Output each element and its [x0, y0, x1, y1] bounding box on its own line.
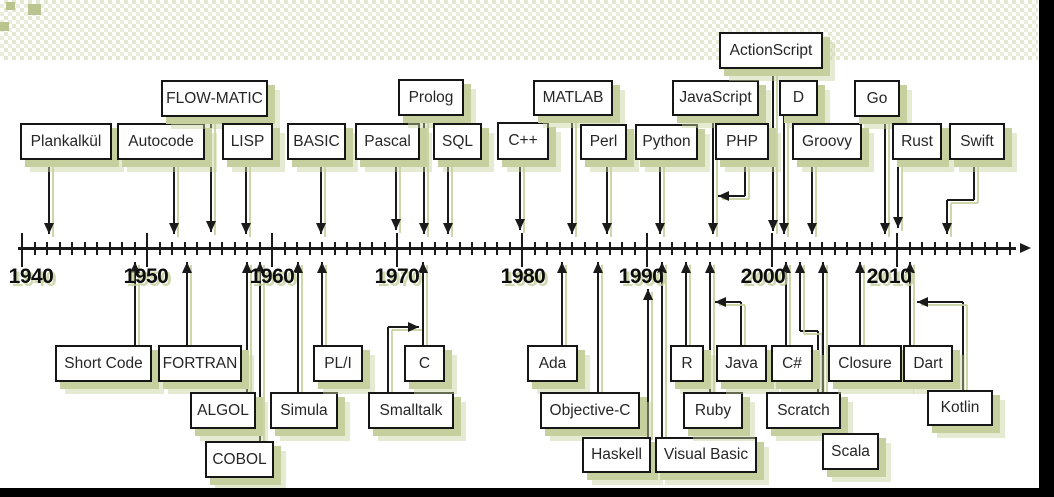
language-label-sql: SQL — [442, 133, 473, 151]
axis-year-tick — [884, 242, 886, 255]
language-label-c: C — [419, 355, 430, 373]
connector-objective-c — [597, 262, 599, 392]
language-box-scala: Scala — [822, 433, 879, 470]
language-label-ada: Ada — [539, 355, 567, 373]
language-label-python: Python — [642, 133, 690, 151]
arrow-pascal — [391, 219, 401, 230]
connector-r — [685, 262, 687, 345]
axis-year-tick — [434, 242, 436, 255]
axis-year-tick — [871, 242, 873, 255]
axis-decade-tick — [21, 233, 23, 267]
connector-fortran — [186, 262, 188, 345]
language-box-flow-matic: FLOW-MATIC — [161, 80, 268, 117]
language-box-go: Go — [854, 80, 900, 117]
language-label-scratch: Scratch — [777, 402, 830, 420]
language-label-algol: ALGOL — [197, 402, 249, 420]
axis-year-tick — [321, 242, 323, 255]
language-label-pl-i: PL/I — [324, 355, 352, 373]
language-label-ruby: Ruby — [695, 402, 731, 420]
axis-year-tick — [859, 242, 861, 255]
axis-year-label-1980: 1980 — [501, 265, 546, 289]
language-label-swift: Swift — [960, 133, 994, 151]
arrow-lisp — [241, 223, 251, 234]
axis-year-tick — [559, 242, 561, 255]
language-label-fortran: FORTRAN — [163, 355, 238, 373]
axis-year-tick — [721, 242, 723, 255]
connector-ada — [561, 262, 563, 345]
axis-year-tick — [709, 242, 711, 255]
axis-year-tick — [409, 242, 411, 255]
language-box-ruby: Ruby — [683, 392, 743, 429]
arrow-c — [515, 219, 525, 230]
axis-year-tick — [684, 242, 686, 255]
axis-year-tick — [984, 242, 986, 255]
language-label-pascal: Pascal — [364, 133, 411, 151]
language-label-short-code: Short Code — [64, 355, 142, 373]
axis-year-tick — [71, 242, 73, 255]
language-label-groovy: Groovy — [802, 133, 852, 151]
axis-year-tick — [971, 242, 973, 255]
axis-year-tick — [659, 242, 661, 255]
axis-year-tick — [796, 242, 798, 255]
arrow-d — [779, 223, 789, 234]
axis-year-label-1950: 1950 — [124, 265, 169, 289]
axis-year-tick — [784, 242, 786, 255]
corner-speckle — [6, 2, 15, 10]
axis-year-tick — [821, 242, 823, 255]
language-label-autocode: Autocode — [128, 133, 194, 151]
axis-year-tick — [209, 242, 211, 255]
axis-decade-tick — [896, 233, 898, 267]
connector-actionscript — [772, 69, 774, 231]
axis-end-arrow — [1020, 243, 1031, 253]
axis-year-tick — [334, 242, 336, 255]
arrow-kotlin — [917, 297, 928, 307]
language-label-dart: Dart — [913, 355, 942, 373]
language-label-prolog: Prolog — [409, 89, 454, 107]
arrow-haskell — [643, 289, 653, 300]
language-box-autocode: Autocode — [117, 123, 205, 160]
axis-year-tick — [534, 242, 536, 255]
connector-kotlin — [962, 302, 964, 390]
arrow-swift — [942, 223, 952, 234]
arrow-javascript — [708, 223, 718, 234]
programming-languages-timeline-diagram: 19401950196019701980199020002010Plankalk… — [0, 0, 1054, 497]
axis-year-tick — [446, 242, 448, 255]
axis-year-tick — [384, 242, 386, 255]
axis-year-tick — [609, 242, 611, 255]
axis-year-tick — [259, 242, 261, 255]
language-box-r: R — [670, 345, 704, 382]
language-box-pascal: Pascal — [355, 123, 420, 160]
axis-year-tick — [696, 242, 698, 255]
language-box-sql: SQL — [433, 123, 482, 160]
language-box-plankalk-l: Plankalkül — [20, 123, 112, 160]
axis-year-tick — [934, 242, 936, 255]
language-label-smalltalk: Smalltalk — [380, 402, 443, 420]
connector-matlab — [571, 116, 573, 234]
axis-decade-tick — [146, 233, 148, 267]
arrow-matlab — [567, 223, 577, 234]
language-label-java: Java — [725, 355, 758, 373]
connector-pl-i — [321, 262, 323, 345]
language-label-perl: Perl — [590, 133, 618, 151]
language-box-dart: Dart — [903, 345, 953, 382]
frame-bottom-bar — [0, 488, 1054, 497]
language-label-matlab: MATLAB — [543, 89, 604, 107]
language-box-python: Python — [635, 124, 698, 160]
arrow-prolog — [419, 223, 429, 234]
axis-year-tick — [96, 242, 98, 255]
axis-year-tick — [759, 242, 761, 255]
arrow-actionscript — [768, 220, 778, 231]
axis-year-tick — [159, 242, 161, 255]
axis-year-tick — [284, 242, 286, 255]
arrow-flow-matic — [206, 221, 216, 232]
connector-flow-matic — [210, 117, 212, 232]
axis-year-tick — [834, 242, 836, 255]
language-label-c: C++ — [508, 132, 537, 150]
axis-year-tick — [734, 242, 736, 255]
language-box-c: C — [404, 345, 445, 382]
language-label-cobol: COBOL — [212, 451, 266, 469]
axis-year-tick — [234, 242, 236, 255]
arrow-groovy — [807, 223, 817, 234]
axis-year-tick — [1009, 242, 1011, 255]
language-box-cobol: COBOL — [205, 441, 274, 478]
axis-year-tick — [921, 242, 923, 255]
language-box-fortran: FORTRAN — [158, 345, 242, 382]
axis-year-tick — [846, 242, 848, 255]
language-label-actionscript: ActionScript — [730, 42, 813, 60]
language-box-c: C# — [771, 345, 813, 382]
language-label-javascript: JavaScript — [679, 89, 751, 107]
frame-right-bar — [1039, 0, 1054, 497]
axis-year-tick — [296, 242, 298, 255]
language-box-haskell: Haskell — [582, 437, 651, 473]
axis-year-tick — [496, 242, 498, 255]
language-box-groovy: Groovy — [792, 123, 862, 160]
arrow-sql — [443, 223, 453, 234]
language-label-d: D — [793, 89, 804, 107]
connector-ruby — [709, 262, 711, 392]
corner-speckle — [28, 4, 41, 15]
connector-javascript — [712, 116, 714, 234]
axis-year-tick — [484, 242, 486, 255]
language-box-c: C++ — [497, 122, 549, 160]
axis-decade-tick — [646, 233, 648, 267]
axis-year-tick — [346, 242, 348, 255]
axis-year-tick — [584, 242, 586, 255]
language-label-rust: Rust — [901, 133, 933, 151]
axis-year-tick — [121, 242, 123, 255]
language-label-php: PHP — [726, 133, 758, 151]
language-box-actionscript: ActionScript — [719, 32, 823, 69]
arrow-python — [655, 223, 665, 234]
connector-simula — [297, 262, 299, 392]
axis-year-tick — [621, 242, 623, 255]
axis-year-tick — [221, 242, 223, 255]
arrow-closure — [855, 262, 865, 273]
arrow-objective-c — [593, 262, 603, 273]
axis-year-label-1970: 1970 — [375, 265, 420, 289]
language-label-haskell: Haskell — [591, 446, 642, 464]
arrow-r — [681, 262, 691, 273]
language-box-java: Java — [716, 345, 767, 382]
language-label-simula: Simula — [280, 402, 327, 420]
axis-year-tick — [134, 242, 136, 255]
axis-year-tick — [809, 242, 811, 255]
axis-year-tick — [634, 242, 636, 255]
axis-year-tick — [571, 242, 573, 255]
axis-year-tick — [196, 242, 198, 255]
connector-prolog — [423, 116, 425, 234]
language-box-smalltalk: Smalltalk — [368, 392, 454, 429]
arrow-go — [880, 223, 890, 234]
axis-year-tick — [959, 242, 961, 255]
axis-year-tick — [46, 242, 48, 255]
language-box-short-code: Short Code — [55, 345, 152, 382]
language-box-simula: Simula — [270, 392, 338, 429]
language-box-algol: ALGOL — [190, 392, 256, 429]
axis-year-tick — [371, 242, 373, 255]
arrow-basic — [316, 223, 326, 234]
connector-haskell — [647, 289, 649, 437]
connector-java — [740, 302, 742, 345]
arrow-java — [715, 297, 726, 307]
language-label-basic: BASIC — [293, 133, 340, 151]
arrow-scratch — [795, 262, 805, 273]
connector-c — [422, 262, 424, 345]
language-box-php: PHP — [715, 123, 769, 160]
timeline-axis — [18, 247, 1016, 250]
language-box-swift: Swift — [949, 123, 1005, 160]
language-box-ada: Ada — [527, 345, 578, 382]
axis-year-label-1990: 1990 — [619, 265, 664, 289]
axis-decade-tick — [396, 233, 398, 267]
axis-year-tick — [546, 242, 548, 255]
arrow-fortran — [182, 262, 192, 273]
arrow-perl — [602, 223, 612, 234]
connector-algol — [246, 262, 248, 392]
language-box-pl-i: PL/I — [313, 345, 363, 382]
language-box-closure: Closure — [828, 345, 902, 382]
axis-year-tick — [746, 242, 748, 255]
language-label-closure: Closure — [838, 355, 891, 373]
language-box-javascript: JavaScript — [672, 80, 759, 116]
axis-noise-band — [0, 0, 1038, 60]
language-label-r: R — [681, 355, 692, 373]
axis-year-tick — [59, 242, 61, 255]
axis-decade-tick — [771, 233, 773, 267]
arrow-smalltalk — [408, 322, 419, 332]
language-label-visual-basic: Visual Basic — [664, 446, 748, 464]
language-box-rust: Rust — [892, 123, 942, 160]
arrow-autocode — [169, 223, 179, 234]
language-box-matlab: MATLAB — [533, 80, 613, 116]
connector-scratch — [800, 330, 818, 332]
axis-year-label-1940: 1940 — [9, 265, 54, 289]
language-label-go: Go — [867, 90, 888, 108]
language-box-visual-basic: Visual Basic — [655, 437, 757, 473]
axis-year-tick — [671, 242, 673, 255]
arrow-pl-i — [317, 262, 327, 273]
language-label-objective-c: Objective-C — [550, 402, 631, 420]
axis-year-tick — [184, 242, 186, 255]
language-box-scratch: Scratch — [766, 392, 841, 429]
arrow-php — [718, 191, 729, 201]
axis-year-label-2010: 2010 — [867, 265, 912, 289]
axis-year-tick — [84, 242, 86, 255]
corner-speckle — [0, 22, 9, 31]
language-box-prolog: Prolog — [398, 79, 464, 116]
axis-year-tick — [309, 242, 311, 255]
axis-year-tick — [471, 242, 473, 255]
axis-year-tick — [421, 242, 423, 255]
arrow-plankalk-l — [44, 223, 54, 234]
axis-year-tick — [246, 242, 248, 255]
language-box-kotlin: Kotlin — [927, 390, 993, 426]
axis-year-tick — [596, 242, 598, 255]
connector-scratch — [817, 331, 819, 392]
axis-year-tick — [171, 242, 173, 255]
connector-swift — [947, 199, 974, 201]
arrow-rust — [893, 217, 903, 228]
language-label-scala: Scala — [831, 443, 870, 461]
axis-year-tick — [459, 242, 461, 255]
language-label-lisp: LISP — [231, 133, 265, 151]
language-box-d: D — [779, 80, 818, 116]
connector-php — [744, 160, 746, 196]
axis-year-tick — [996, 242, 998, 255]
language-box-objective-c: Objective-C — [540, 392, 640, 429]
axis-year-label-1960: 1960 — [250, 265, 295, 289]
axis-year-tick — [359, 242, 361, 255]
connector-closure — [859, 262, 861, 345]
language-box-lisp: LISP — [222, 123, 273, 160]
axis-year-tick — [109, 242, 111, 255]
axis-year-label-2000: 2000 — [741, 265, 786, 289]
axis-decade-tick — [271, 233, 273, 267]
axis-year-tick — [909, 242, 911, 255]
language-label-flow-matic: FLOW-MATIC — [166, 90, 263, 108]
connector-smalltalk — [387, 327, 389, 392]
language-box-perl: Perl — [580, 124, 627, 160]
arrow-scala — [818, 262, 828, 273]
language-label-kotlin: Kotlin — [941, 399, 980, 417]
arrow-ruby — [705, 262, 715, 273]
arrow-ada — [557, 262, 567, 273]
axis-year-tick — [34, 242, 36, 255]
axis-year-tick — [946, 242, 948, 255]
axis-year-tick — [509, 242, 511, 255]
connector-go — [884, 117, 886, 234]
language-box-basic: BASIC — [287, 123, 346, 160]
axis-decade-tick — [521, 233, 523, 267]
connector-swift — [973, 160, 975, 200]
language-label-c: C# — [782, 355, 802, 373]
connector-d — [783, 116, 785, 234]
language-label-plankalk-l: Plankalkül — [31, 133, 102, 151]
